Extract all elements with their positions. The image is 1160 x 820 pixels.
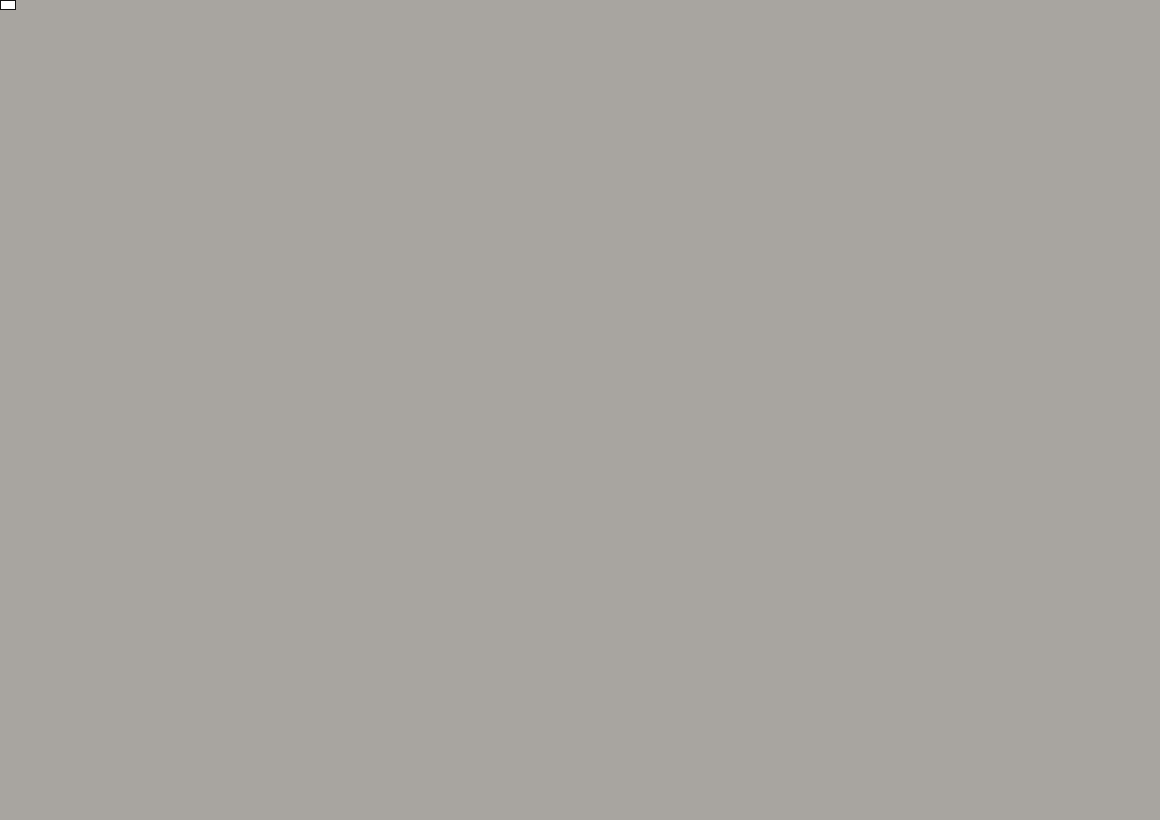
callout-moenchstrasse <box>0 0 16 10</box>
map-canvas <box>0 0 1160 820</box>
map-svg <box>0 0 1160 820</box>
